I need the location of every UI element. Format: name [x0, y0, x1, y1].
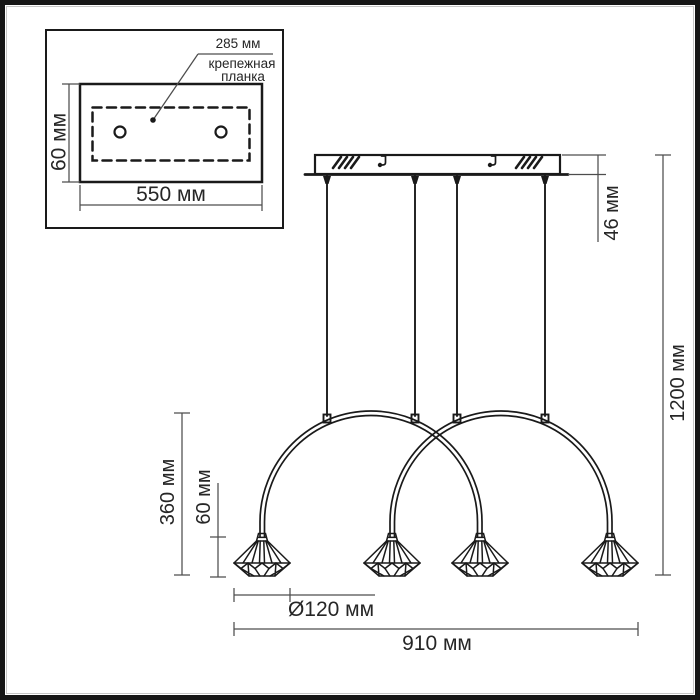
plate-length-label: 285 мм: [216, 36, 261, 51]
technical-drawing-page: 285 мм крепежная планка 60 мм 550 мм: [0, 0, 700, 700]
lampshade: [452, 534, 508, 577]
wire-ceiling-flares: [323, 176, 549, 184]
canopy-hatch-left: [333, 157, 359, 168]
image-border-hairline: [7, 7, 694, 694]
overall-width-label: 910 мм: [402, 632, 472, 655]
fastener-hook-left-icon: [378, 156, 386, 167]
shade-diameter-label: Ø120 мм: [288, 598, 374, 621]
leader-dot: [150, 117, 156, 123]
fastener-hook-right-icon: [488, 156, 496, 167]
shade-height-label: 60 мм: [193, 469, 215, 524]
lampshade: [582, 534, 638, 577]
lampshade: [364, 534, 420, 577]
overall-height-label: 1200 мм: [667, 344, 689, 422]
canopy-hatch-right: [516, 157, 542, 168]
mounting-hole-left: [115, 127, 126, 138]
mounting-hole-right: [216, 127, 227, 138]
dimension-drawing-canvas: 285 мм крепежная планка 60 мм 550 мм: [0, 0, 700, 700]
canopy-height-label: 46 мм: [601, 185, 623, 240]
lampshade: [234, 534, 290, 577]
arm-drop-label: 360 мм: [157, 459, 179, 525]
suspension-wires: [323, 176, 549, 416]
plate-width-label: 550 мм: [136, 183, 206, 206]
mounting-plate-inset: 285 мм крепежная планка 60 мм 550 мм: [46, 30, 283, 228]
mounting-plate-outline: [80, 84, 262, 182]
plate-height-label: 60 мм: [48, 113, 71, 171]
luminaire-front-view: 46 мм 1200 мм 360 мм 60 мм Ø120 мм 910 м…: [157, 155, 689, 655]
bracket-caption-line2: планка: [221, 69, 265, 84]
canopy-height-dimension: [562, 155, 606, 242]
